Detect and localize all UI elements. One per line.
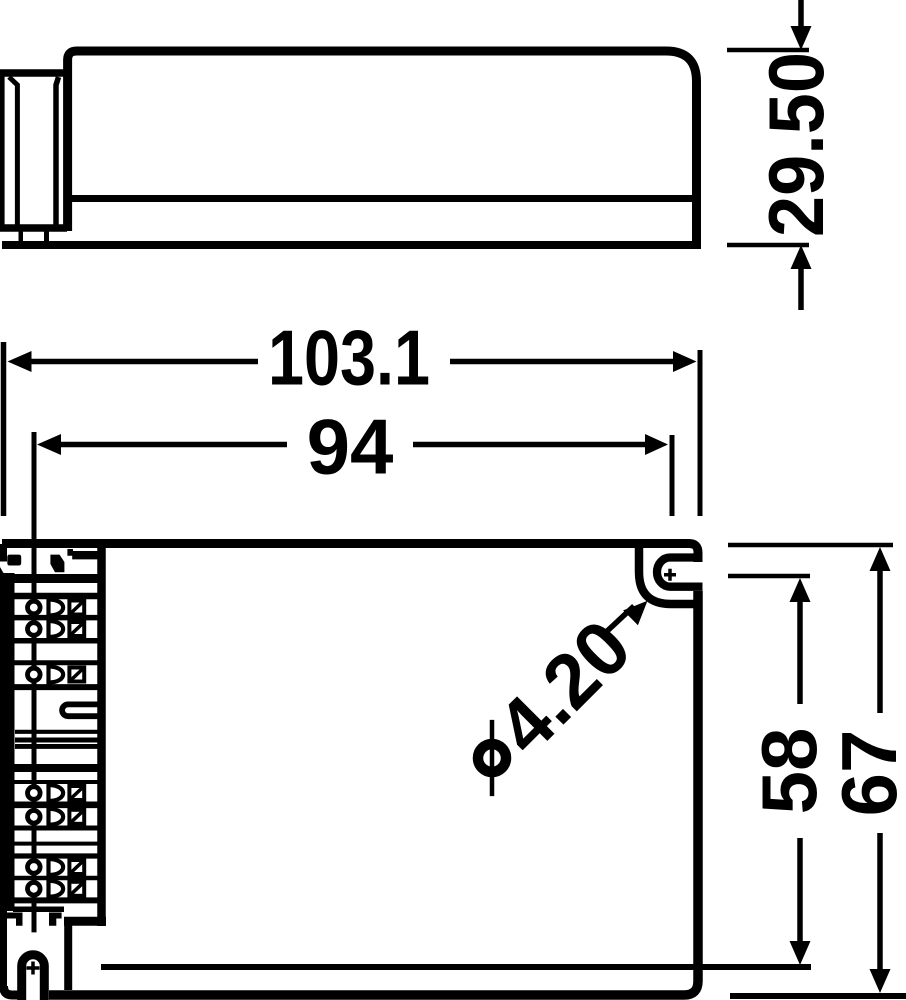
svg-text:103.1: 103.1 xyxy=(268,314,430,402)
svg-text:58: 58 xyxy=(745,728,833,815)
svg-text:94: 94 xyxy=(307,403,394,491)
svg-text:29.50: 29.50 xyxy=(752,52,840,237)
svg-text:67: 67 xyxy=(825,730,906,817)
